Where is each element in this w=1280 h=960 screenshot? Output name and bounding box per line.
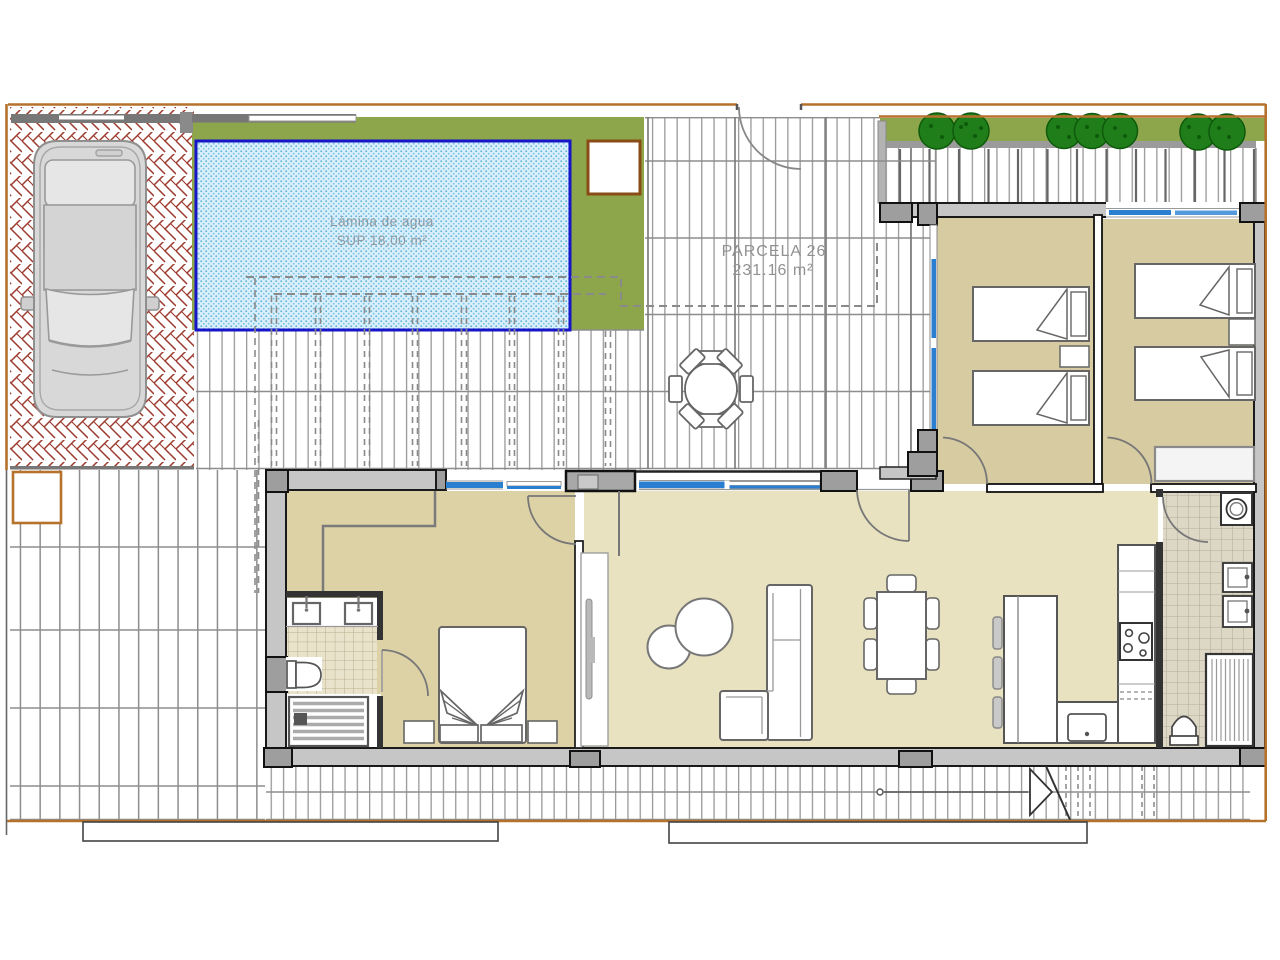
- svg-text:Lámina de agua: Lámina de agua: [330, 214, 434, 229]
- svg-text:231.16 m²: 231.16 m²: [732, 262, 813, 279]
- svg-text:SUP 18,00 m²: SUP 18,00 m²: [337, 233, 428, 248]
- svg-text:PARCELA 26: PARCELA 26: [722, 243, 827, 260]
